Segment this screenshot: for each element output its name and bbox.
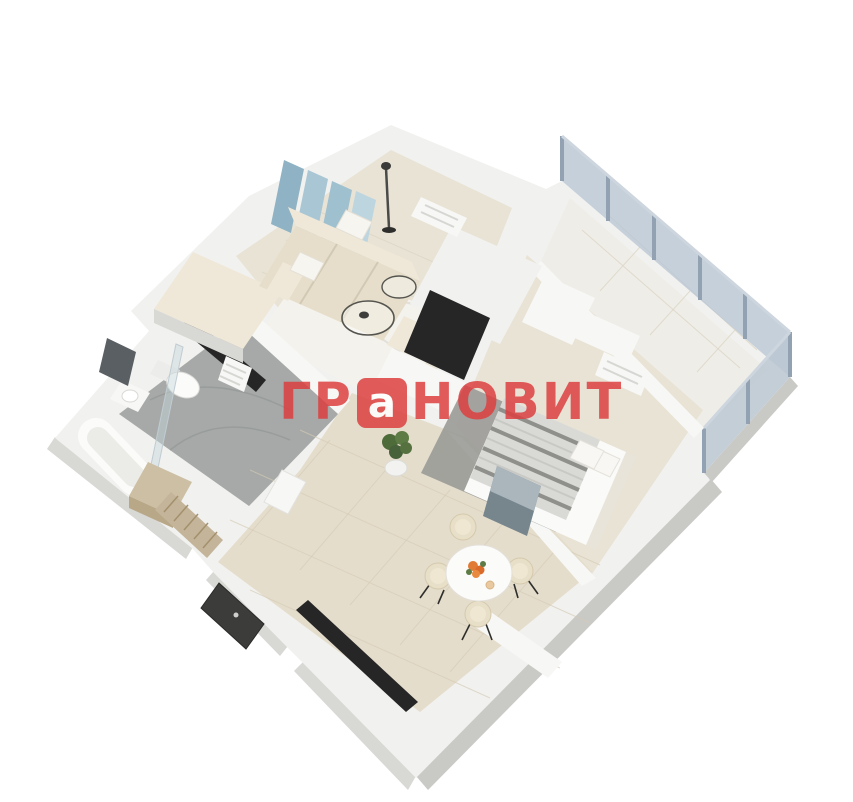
coffee-table-large bbox=[342, 301, 394, 335]
coffee-table-small bbox=[382, 276, 416, 298]
sink-basin bbox=[122, 390, 138, 402]
lamp-base bbox=[382, 227, 396, 233]
floorplan-render: ГР а НОВИТ bbox=[0, 0, 853, 802]
watermark-prefix: ГР bbox=[279, 377, 353, 428]
plant-pot bbox=[385, 460, 407, 476]
chair-seat bbox=[455, 519, 471, 535]
chair-seat bbox=[512, 563, 528, 579]
plant-foliage bbox=[400, 442, 412, 454]
flower bbox=[472, 570, 480, 578]
chair-seat bbox=[470, 606, 486, 622]
chair-seat bbox=[430, 568, 446, 584]
flower-leaf bbox=[466, 569, 472, 575]
teacup bbox=[486, 581, 494, 589]
watermark-logo: ГР а НОВИТ bbox=[279, 377, 623, 428]
table-decor bbox=[359, 312, 369, 319]
flower-leaf bbox=[480, 561, 486, 567]
watermark-suffix: НОВИТ bbox=[411, 377, 623, 428]
watermark-letter-box: а bbox=[357, 378, 407, 428]
watermark-boxed-letter: а bbox=[368, 382, 396, 424]
lamp-head bbox=[381, 162, 391, 170]
door-handle bbox=[234, 613, 239, 618]
